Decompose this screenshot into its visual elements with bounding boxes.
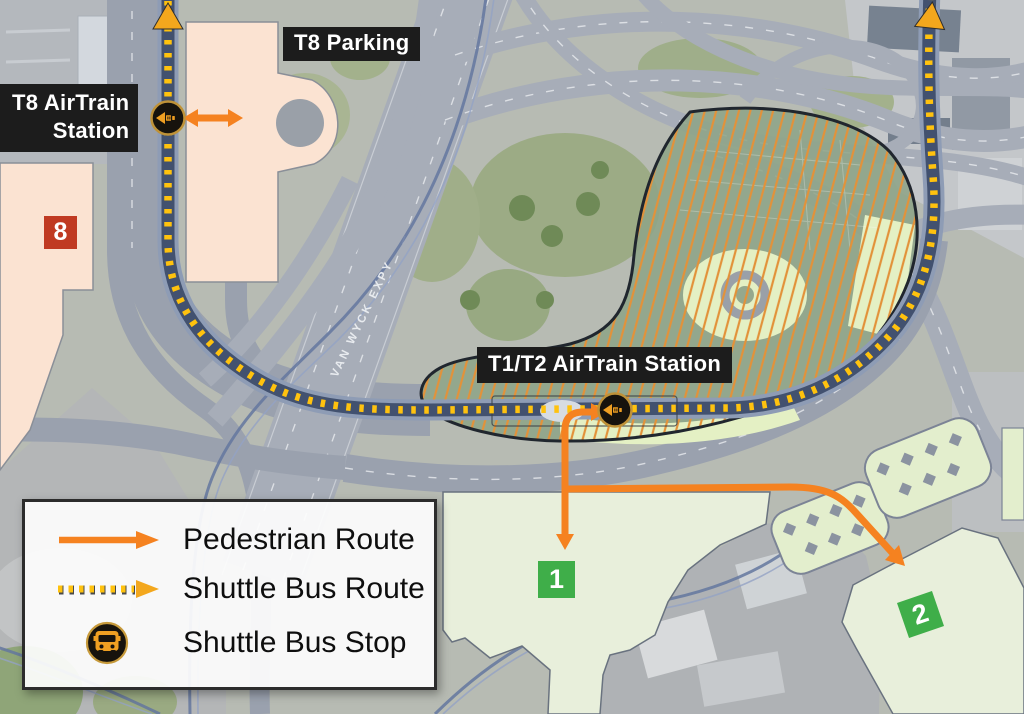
- terminal-1-badge: 1: [538, 561, 575, 598]
- airport-map: VAN WYCK EXPY T8 Parking T8 AirTrain Sta…: [0, 0, 1024, 714]
- label-line-1: T8 AirTrain: [12, 89, 129, 117]
- shuttle-bus-stop-marker-t1t2: [599, 394, 632, 427]
- legend-label: Shuttle Bus Route: [183, 572, 425, 606]
- label-t1t2-airtrain-station: T1/T2 AirTrain Station: [477, 347, 732, 383]
- shuttle-bus-stop-icon: [41, 620, 173, 666]
- legend-item-pedestrian-route: Pedestrian Route: [25, 523, 434, 557]
- label-t8-parking: T8 Parking: [283, 27, 420, 61]
- label-t8-airtrain-station: T8 AirTrain Station: [0, 84, 138, 152]
- legend-label: Pedestrian Route: [183, 523, 415, 557]
- map-legend: Pedestrian Route Shuttle Bus Route: [22, 499, 437, 690]
- shuttle-bus-route-arrow-icon: [41, 576, 173, 602]
- label-line-2: Station: [12, 117, 129, 145]
- legend-item-shuttle-bus-stop: Shuttle Bus Stop: [25, 620, 434, 666]
- pedestrian-route-arrow-icon: [41, 527, 173, 553]
- terminal-8-badge: 8: [44, 216, 77, 249]
- shuttle-bus-stop-marker-t8: [152, 102, 185, 135]
- legend-item-shuttle-bus-route: Shuttle Bus Route: [25, 572, 434, 606]
- legend-label: Shuttle Bus Stop: [183, 626, 406, 660]
